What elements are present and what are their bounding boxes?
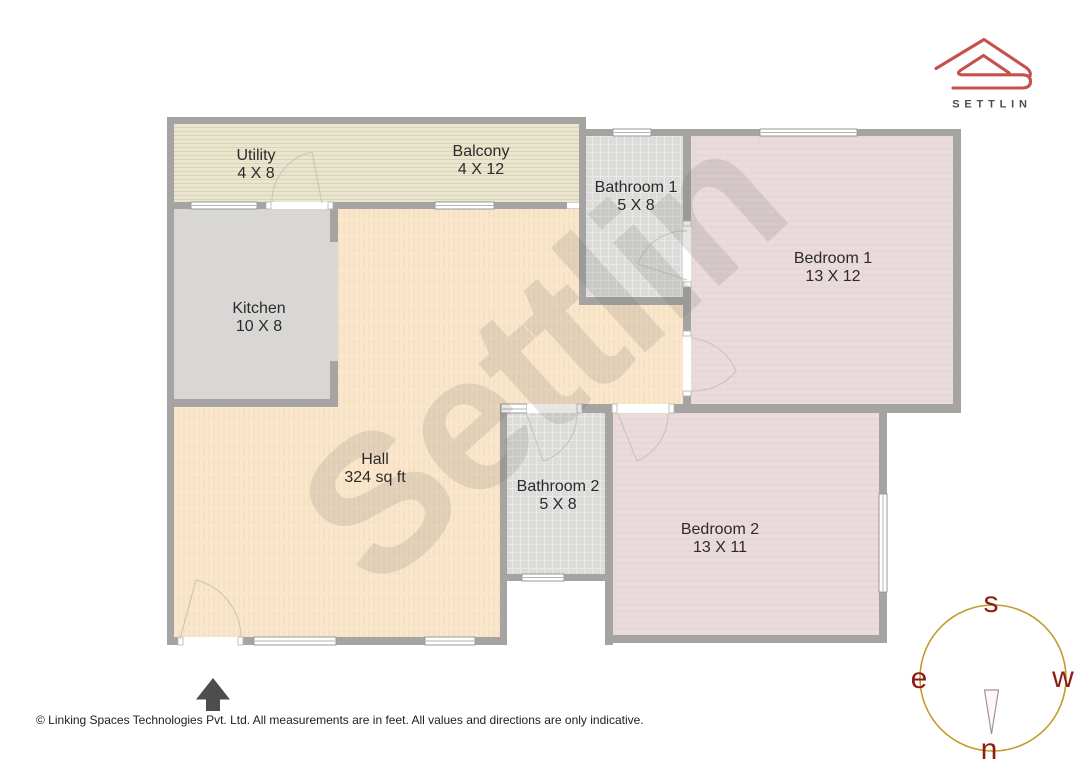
svg-text:Utility: Utility [236,147,275,164]
svg-text:e: e [911,662,928,695]
svg-text:13 X 11: 13 X 11 [693,539,747,556]
svg-text:5 X 8: 5 X 8 [617,197,654,214]
svg-text:Bathroom 1: Bathroom 1 [595,179,678,196]
svg-text:10 X 8: 10 X 8 [236,318,282,335]
svg-text:s: s [984,586,999,619]
svg-text:Balcony: Balcony [453,143,510,160]
svg-text:4 X 8: 4 X 8 [237,165,274,182]
svg-text:SETTLIN: SETTLIN [952,99,1031,111]
svg-text:Kitchen: Kitchen [232,300,285,317]
svg-text:4 X 12: 4 X 12 [458,161,504,178]
svg-text:Hall: Hall [361,451,389,468]
svg-text:5 X 8: 5 X 8 [539,496,576,513]
svg-text:Bathroom 2: Bathroom 2 [517,478,600,495]
svg-text:Bedroom 2: Bedroom 2 [681,521,759,538]
svg-text:w: w [1051,661,1074,694]
svg-text:n: n [981,733,998,764]
svg-text:13 X 12: 13 X 12 [805,268,860,285]
svg-text:Bedroom 1: Bedroom 1 [794,250,872,267]
svg-text:© Linking Spaces Technologies: © Linking Spaces Technologies Pvt. Ltd. … [36,713,644,727]
svg-text:324 sq ft: 324 sq ft [344,469,406,486]
